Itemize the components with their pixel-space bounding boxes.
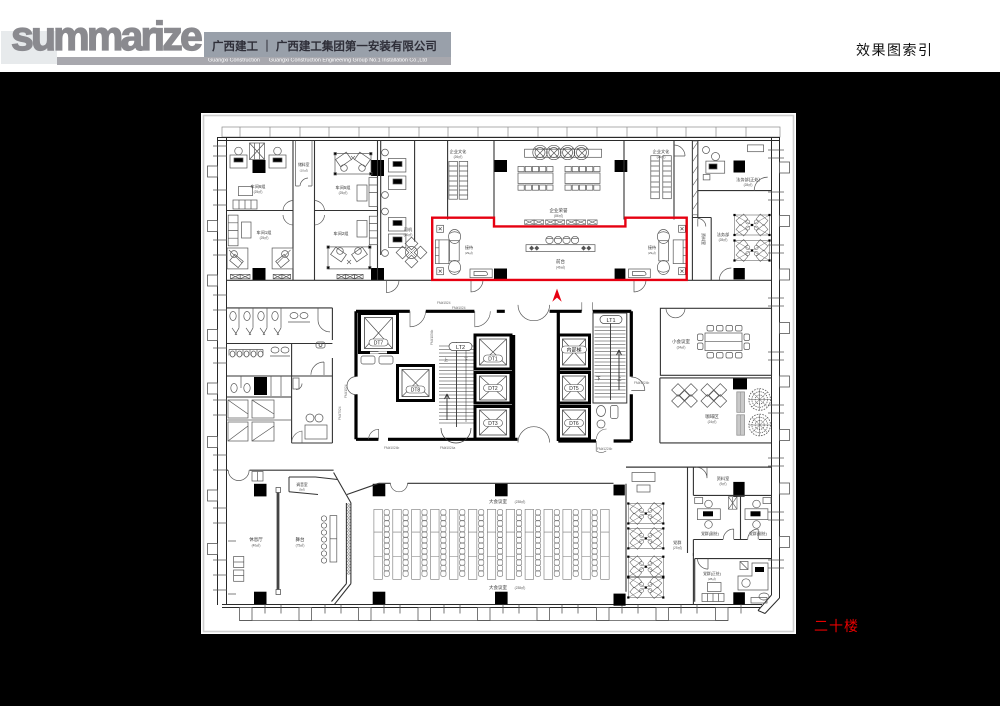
svg-text:上: 上 <box>617 375 622 381</box>
svg-text:(9㎡): (9㎡) <box>719 481 726 486</box>
svg-text:(20㎡): (20㎡) <box>404 232 413 237</box>
svg-text:前台: 前台 <box>556 258 565 265</box>
svg-text:舞台: 舞台 <box>296 536 305 543</box>
svg-text:(25㎡): (25㎡) <box>260 235 269 240</box>
svg-text:(25㎡): (25㎡) <box>339 190 348 195</box>
svg-text:资料室: 资料室 <box>717 475 730 482</box>
svg-text:咖啡区: 咖啡区 <box>705 413 719 420</box>
svg-text:大会议室: 大会议室 <box>489 584 507 591</box>
svg-text:内部梯: 内部梯 <box>566 347 581 354</box>
svg-text:车间6组: 车间6组 <box>251 183 266 190</box>
svg-text:DT8: DT8 <box>411 388 421 394</box>
svg-text:接待: 接待 <box>648 244 656 250</box>
svg-text:(40㎡): (40㎡) <box>252 543 261 548</box>
svg-text:FM#1024b: FM#1024b <box>384 446 399 450</box>
svg-text:DT6: DT6 <box>569 421 579 427</box>
svg-text:法务部(正处): 法务部(正处) <box>736 176 760 183</box>
svg-text:车间2组: 车间2组 <box>334 230 349 237</box>
svg-text:(238㎡): (238㎡) <box>515 499 526 504</box>
svg-text:(28㎡): (28㎡) <box>744 182 753 187</box>
svg-text:(24㎡): (24㎡) <box>708 419 717 424</box>
svg-text:(25㎡): (25㎡) <box>673 545 682 550</box>
svg-text:党群(副处): 党群(副处) <box>701 531 719 536</box>
svg-text:FM#1024: FM#1024 <box>452 306 466 310</box>
svg-text:FM#1524: FM#1524 <box>437 301 451 305</box>
svg-text:DT1: DT1 <box>488 357 498 363</box>
svg-text:接待: 接待 <box>465 244 473 250</box>
svg-text:党群(正处): 党群(正处) <box>703 571 721 576</box>
svg-text:上: 上 <box>444 356 448 362</box>
svg-text:司机: 司机 <box>404 226 413 233</box>
svg-text:(29㎡): (29㎡) <box>465 250 473 255</box>
svg-text:(28㎡): (28㎡) <box>708 576 716 581</box>
svg-text:企业文化: 企业文化 <box>653 148 671 155</box>
svg-text:储料室: 储料室 <box>298 162 310 167</box>
svg-text:(10㎡): (10㎡) <box>300 168 308 173</box>
svg-text:企业文化: 企业文化 <box>450 148 468 155</box>
svg-text:DT2: DT2 <box>488 386 498 392</box>
svg-text:资料室: 资料室 <box>701 233 707 245</box>
svg-text:党群: 党群 <box>673 539 682 546</box>
svg-text:车间1组: 车间1组 <box>257 229 272 236</box>
svg-text:(238㎡): (238㎡) <box>515 585 526 590</box>
svg-text:休息厅: 休息厅 <box>249 536 263 543</box>
svg-text:DT5: DT5 <box>569 386 579 392</box>
svg-text:小会议室: 小会议室 <box>672 338 690 345</box>
svg-text:FM#1224b: FM#1224b <box>634 381 649 385</box>
svg-text:车间5组: 车间5组 <box>336 184 351 191</box>
svg-text:FM#1024a: FM#1024a <box>440 446 455 450</box>
svg-text:(34㎡): (34㎡) <box>677 345 686 350</box>
svg-text:(9㎡): (9㎡) <box>299 488 305 492</box>
svg-text:(26㎡): (26㎡) <box>657 154 666 159</box>
svg-text:(25㎡): (25㎡) <box>254 189 263 194</box>
svg-text:(29㎡): (29㎡) <box>648 250 656 255</box>
svg-text:LT2: LT2 <box>456 345 465 351</box>
svg-text:(28㎡): (28㎡) <box>719 237 728 242</box>
svg-text:(75㎡): (75㎡) <box>296 543 305 548</box>
svg-text:DT3: DT3 <box>488 421 498 427</box>
svg-text:FM#7524: FM#7524 <box>338 406 342 420</box>
svg-text:(46㎡): (46㎡) <box>556 265 565 270</box>
svg-text:FM#1224b: FM#1224b <box>597 447 612 451</box>
svg-text:法务部: 法务部 <box>717 231 730 238</box>
svg-text:下: 下 <box>596 376 601 382</box>
svg-text:FM#1524: FM#1524 <box>344 384 348 398</box>
svg-text:(26㎡): (26㎡) <box>454 154 463 159</box>
svg-text:下: 下 <box>464 357 468 362</box>
svg-text:DT7: DT7 <box>374 341 384 347</box>
svg-text:调音室: 调音室 <box>296 482 308 487</box>
svg-text:大会议室: 大会议室 <box>489 498 507 505</box>
svg-text:LT1: LT1 <box>606 318 615 324</box>
svg-text:(86㎡): (86㎡) <box>554 213 563 218</box>
svg-text:企业荣誉: 企业荣誉 <box>550 207 568 214</box>
svg-text:FM#1034b: FM#1034b <box>430 330 434 345</box>
